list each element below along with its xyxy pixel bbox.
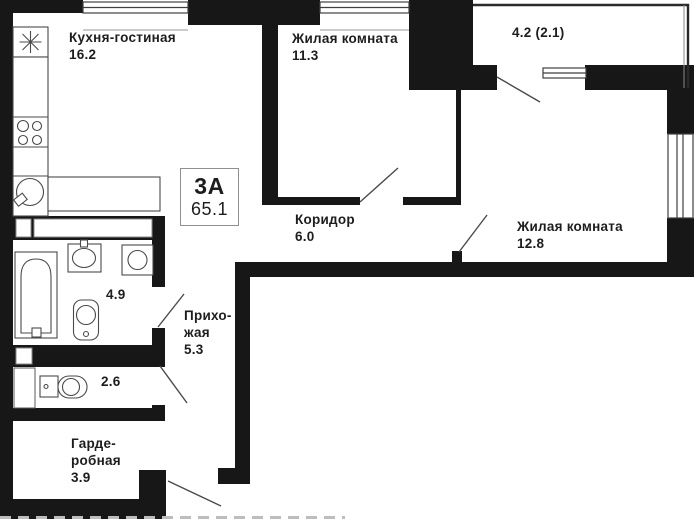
- doors: [158, 77, 540, 506]
- door-wc: [160, 366, 187, 403]
- room-label-living-room-2: Жилая комната 12.8: [517, 218, 623, 252]
- room-area: 4.9: [106, 286, 126, 303]
- room-label-hallway: Прихо- жая 5.3: [184, 307, 232, 358]
- room-label-line: робная: [71, 452, 121, 469]
- apartment-total-area: 65.1: [191, 199, 228, 220]
- washbasin-icon: [68, 240, 101, 272]
- room-label-line: жая: [184, 324, 232, 341]
- room-label-corridor: Коридор 6.0: [295, 211, 355, 245]
- apartment-badge: 3A 65.1: [180, 168, 239, 226]
- door-living-room-1: [360, 168, 398, 202]
- room-label-bathroom: 4.9: [106, 286, 126, 303]
- room-label-line: Жилая комната: [292, 30, 398, 47]
- room-area: 4.2 (2.1): [512, 24, 565, 41]
- room-label-wardrobe: Гарде- робная 3.9: [71, 435, 121, 486]
- toilet-icon: [74, 300, 99, 340]
- floor-plan: Кухня-гостиная 16.2 Жилая комната 11.3 4…: [0, 0, 694, 519]
- door-balcony: [497, 77, 540, 102]
- room-area: 16.2: [69, 46, 176, 63]
- room-label-line: Коридор: [295, 211, 355, 228]
- room-label-line: Прихо-: [184, 307, 232, 324]
- room-label-living-room-1: Жилая комната 11.3: [292, 30, 398, 64]
- window-kitchen: [83, 2, 188, 30]
- bathtub-icon: [15, 252, 57, 338]
- room-area: 3.9: [71, 469, 121, 486]
- room-label-kitchen-living: Кухня-гостиная 16.2: [69, 29, 176, 63]
- door-entrance: [168, 481, 221, 506]
- room-label-line: Кухня-гостиная: [69, 29, 176, 46]
- window-living-room-1: [320, 2, 409, 30]
- wc-toilet-icon: [40, 376, 87, 398]
- room-area: 5.3: [184, 341, 232, 358]
- window-living-room-2-right: [668, 134, 693, 218]
- window-living-room-2-top: [543, 68, 586, 78]
- room-area: 12.8: [517, 235, 623, 252]
- washing-machine-icon: [122, 245, 153, 275]
- room-area: 2.6: [101, 373, 121, 390]
- door-bathroom: [158, 294, 184, 327]
- room-label-line: Жилая комната: [517, 218, 623, 235]
- fixtures: [13, 27, 160, 398]
- room-label-wc: 2.6: [101, 373, 121, 390]
- vent-icon: [13, 27, 48, 57]
- apartment-type: 3A: [194, 174, 224, 199]
- room-label-line: Гарде-: [71, 435, 121, 452]
- door-living-room-2: [459, 215, 487, 252]
- room-area: 11.3: [292, 47, 398, 64]
- room-area: 6.0: [295, 228, 355, 245]
- room-label-balcony: 4.2 (2.1): [512, 24, 565, 41]
